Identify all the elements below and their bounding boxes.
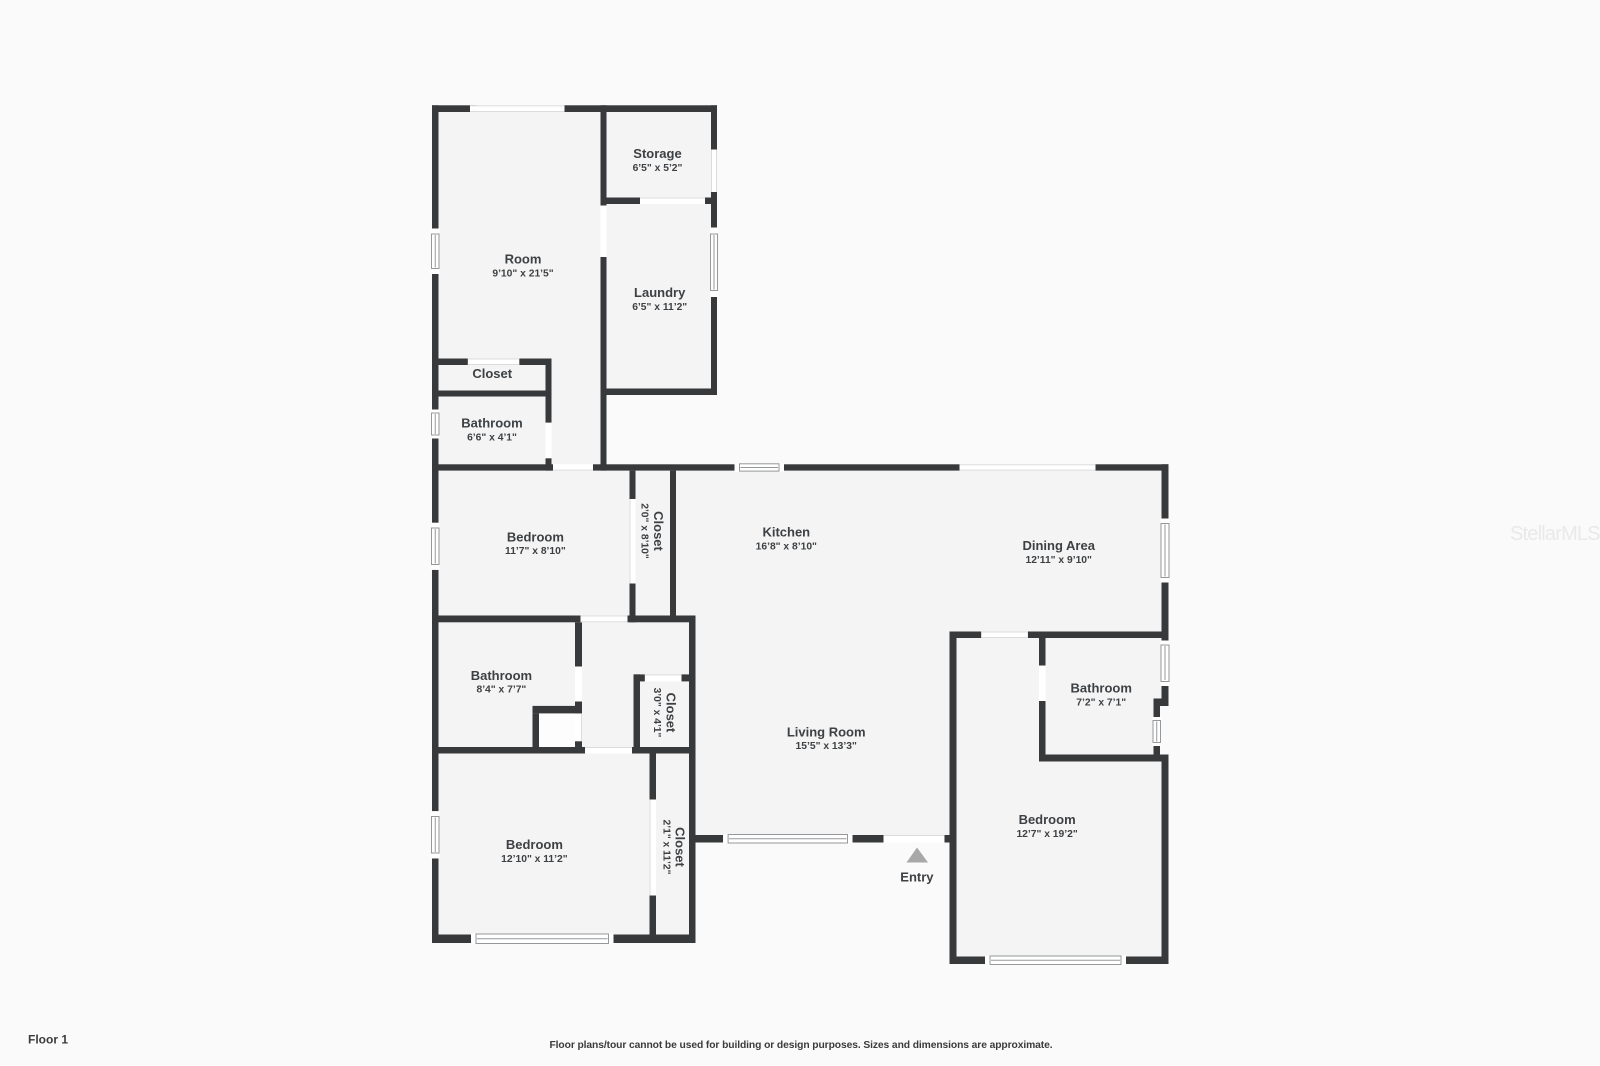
svg-text:Bathroom: Bathroom — [1071, 681, 1132, 696]
svg-text:3’0" x 4’1": 3’0" x 4’1" — [651, 688, 662, 738]
svg-text:Floor 1: Floor 1 — [28, 1033, 68, 1047]
svg-text:16’8" x 8’10": 16’8" x 8’10" — [756, 541, 817, 552]
svg-text:Closet: Closet — [664, 693, 679, 733]
svg-text:15’5" x 13’3": 15’5" x 13’3" — [796, 741, 857, 752]
svg-text:Floor plans/tour cannot be use: Floor plans/tour cannot be used for buil… — [549, 1040, 1052, 1051]
svg-text:6’6" x 4’1": 6’6" x 4’1" — [467, 432, 517, 443]
svg-text:Kitchen: Kitchen — [762, 525, 810, 540]
svg-text:Room: Room — [505, 252, 542, 267]
svg-text:6’5" x 5’2": 6’5" x 5’2" — [633, 163, 683, 174]
svg-text:Bedroom: Bedroom — [506, 837, 563, 852]
svg-text:Laundry: Laundry — [634, 285, 686, 300]
svg-text:Bedroom: Bedroom — [507, 529, 564, 544]
svg-text:Bathroom: Bathroom — [471, 668, 532, 683]
svg-text:StellarMLS: StellarMLS — [1510, 523, 1600, 545]
svg-text:Bedroom: Bedroom — [1019, 812, 1076, 827]
svg-text:12’11" x 9’10": 12’11" x 9’10" — [1025, 555, 1092, 566]
svg-text:Dining Area: Dining Area — [1022, 538, 1095, 553]
svg-text:Closet: Closet — [651, 511, 666, 551]
svg-text:2’0" x 8’10": 2’0" x 8’10" — [639, 503, 650, 559]
svg-text:7’2" x 7’1": 7’2" x 7’1" — [1076, 697, 1126, 708]
svg-text:Bathroom: Bathroom — [461, 416, 522, 431]
svg-text:8’4" x 7’7": 8’4" x 7’7" — [476, 685, 526, 696]
svg-text:Entry: Entry — [900, 870, 934, 885]
svg-text:Storage: Storage — [633, 146, 681, 161]
svg-text:12’10" x 11’2": 12’10" x 11’2" — [501, 854, 568, 865]
svg-text:Closet: Closet — [673, 827, 688, 867]
svg-text:6’5" x 11’2": 6’5" x 11’2" — [632, 302, 687, 313]
svg-text:11’7" x 8’10": 11’7" x 8’10" — [505, 546, 566, 557]
svg-text:12’7" x 19’2": 12’7" x 19’2" — [1016, 829, 1077, 840]
svg-text:9’10" x 21’5": 9’10" x 21’5" — [492, 268, 553, 279]
svg-text:Closet: Closet — [472, 366, 512, 381]
svg-text:Living Room: Living Room — [787, 724, 866, 739]
svg-text:2’1" x 11’2": 2’1" x 11’2" — [660, 820, 671, 875]
